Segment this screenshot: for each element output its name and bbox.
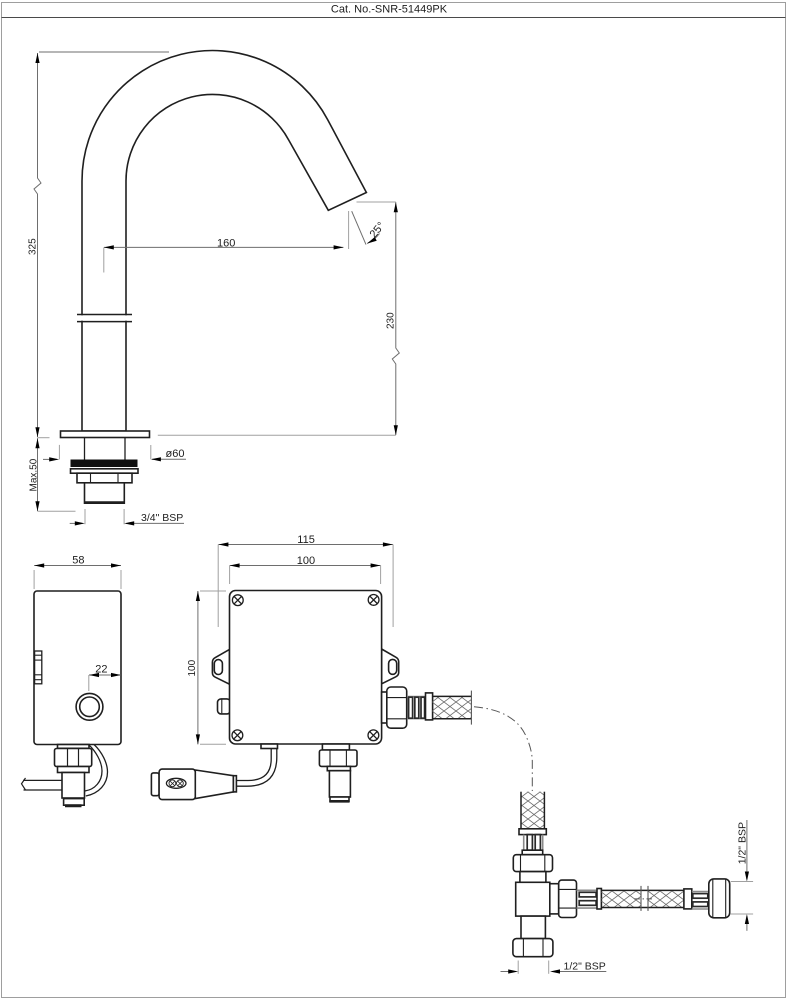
svg-text:100: 100 <box>187 659 198 676</box>
svg-text:58: 58 <box>72 555 84 567</box>
svg-text:1/2" BSP: 1/2" BSP <box>564 960 606 972</box>
svg-text:115: 115 <box>297 534 315 546</box>
svg-text:1/2" BSP: 1/2" BSP <box>737 822 749 864</box>
svg-text:160: 160 <box>217 237 235 249</box>
svg-text:230: 230 <box>385 312 396 329</box>
svg-text:22: 22 <box>95 664 107 676</box>
svg-text:3/4" BSP: 3/4" BSP <box>141 512 183 524</box>
svg-text:325: 325 <box>28 238 39 255</box>
svg-text:100: 100 <box>297 555 315 567</box>
svg-text:Cat. No.-SNR-51449PK: Cat. No.-SNR-51449PK <box>331 3 448 15</box>
svg-text:ø60: ø60 <box>166 448 185 460</box>
svg-text:Max.50: Max.50 <box>29 458 40 491</box>
